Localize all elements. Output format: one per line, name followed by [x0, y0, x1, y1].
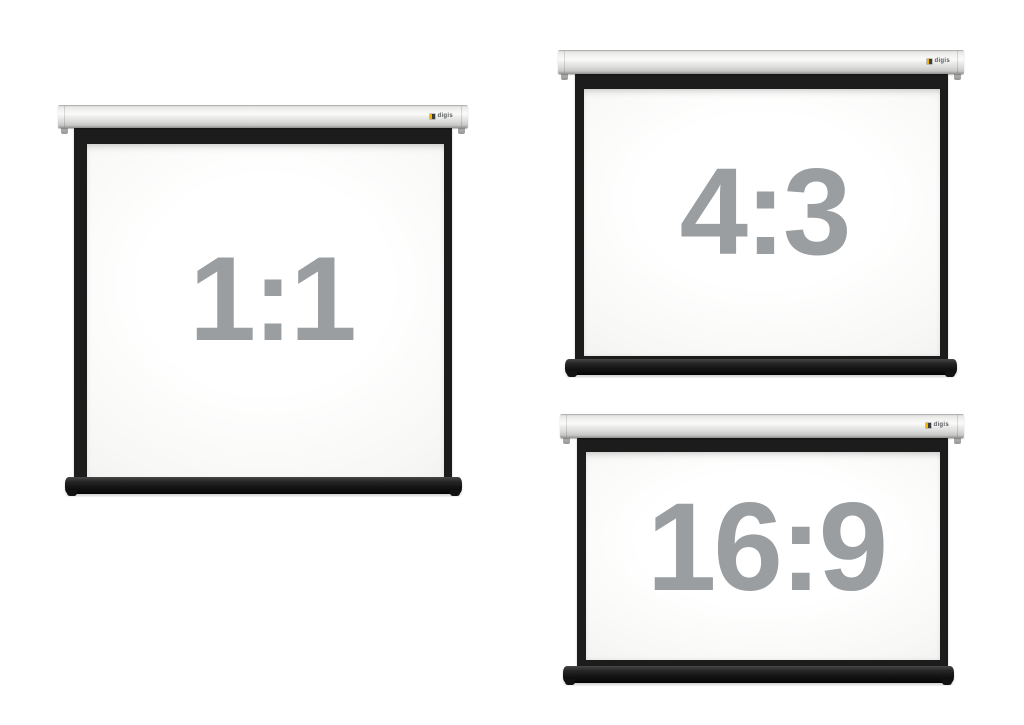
brand-logo-icon: [430, 114, 435, 119]
screen-canvas: 16:9: [586, 452, 940, 660]
projector-screen-1-1: digis 1:1: [58, 105, 468, 497]
screen-frame: 1:1: [74, 127, 452, 487]
aspect-ratio-label: 16:9: [647, 485, 885, 610]
brand-logo: digis: [927, 58, 950, 64]
aspect-ratio-label: 4:3: [680, 151, 849, 274]
brand-logo-text: digis: [933, 422, 949, 428]
brand-logo-icon: [927, 59, 932, 64]
brand-logo-icon: [926, 423, 931, 428]
brand-logo: digis: [926, 422, 949, 428]
screen-frame: 16:9: [577, 437, 948, 668]
screen-canvas: 1:1: [87, 144, 444, 479]
aspect-ratio-label: 1:1: [189, 239, 353, 359]
screen-frame: 4:3: [575, 73, 948, 363]
screen-housing-case: [560, 414, 964, 438]
weight-bar: [563, 666, 954, 683]
projector-screen-16-9: digis 16:9: [559, 414, 965, 683]
brand-logo-text: digis: [437, 113, 453, 119]
screen-housing-case: [58, 105, 468, 128]
screen-housing-case: [558, 50, 964, 74]
brand-logo: digis: [430, 113, 453, 119]
weight-bar: [565, 359, 957, 375]
screen-canvas: 4:3: [584, 89, 940, 356]
weight-bar: [65, 477, 462, 494]
projector-screen-4-3: digis 4:3: [558, 50, 965, 376]
brand-logo-text: digis: [934, 58, 950, 64]
